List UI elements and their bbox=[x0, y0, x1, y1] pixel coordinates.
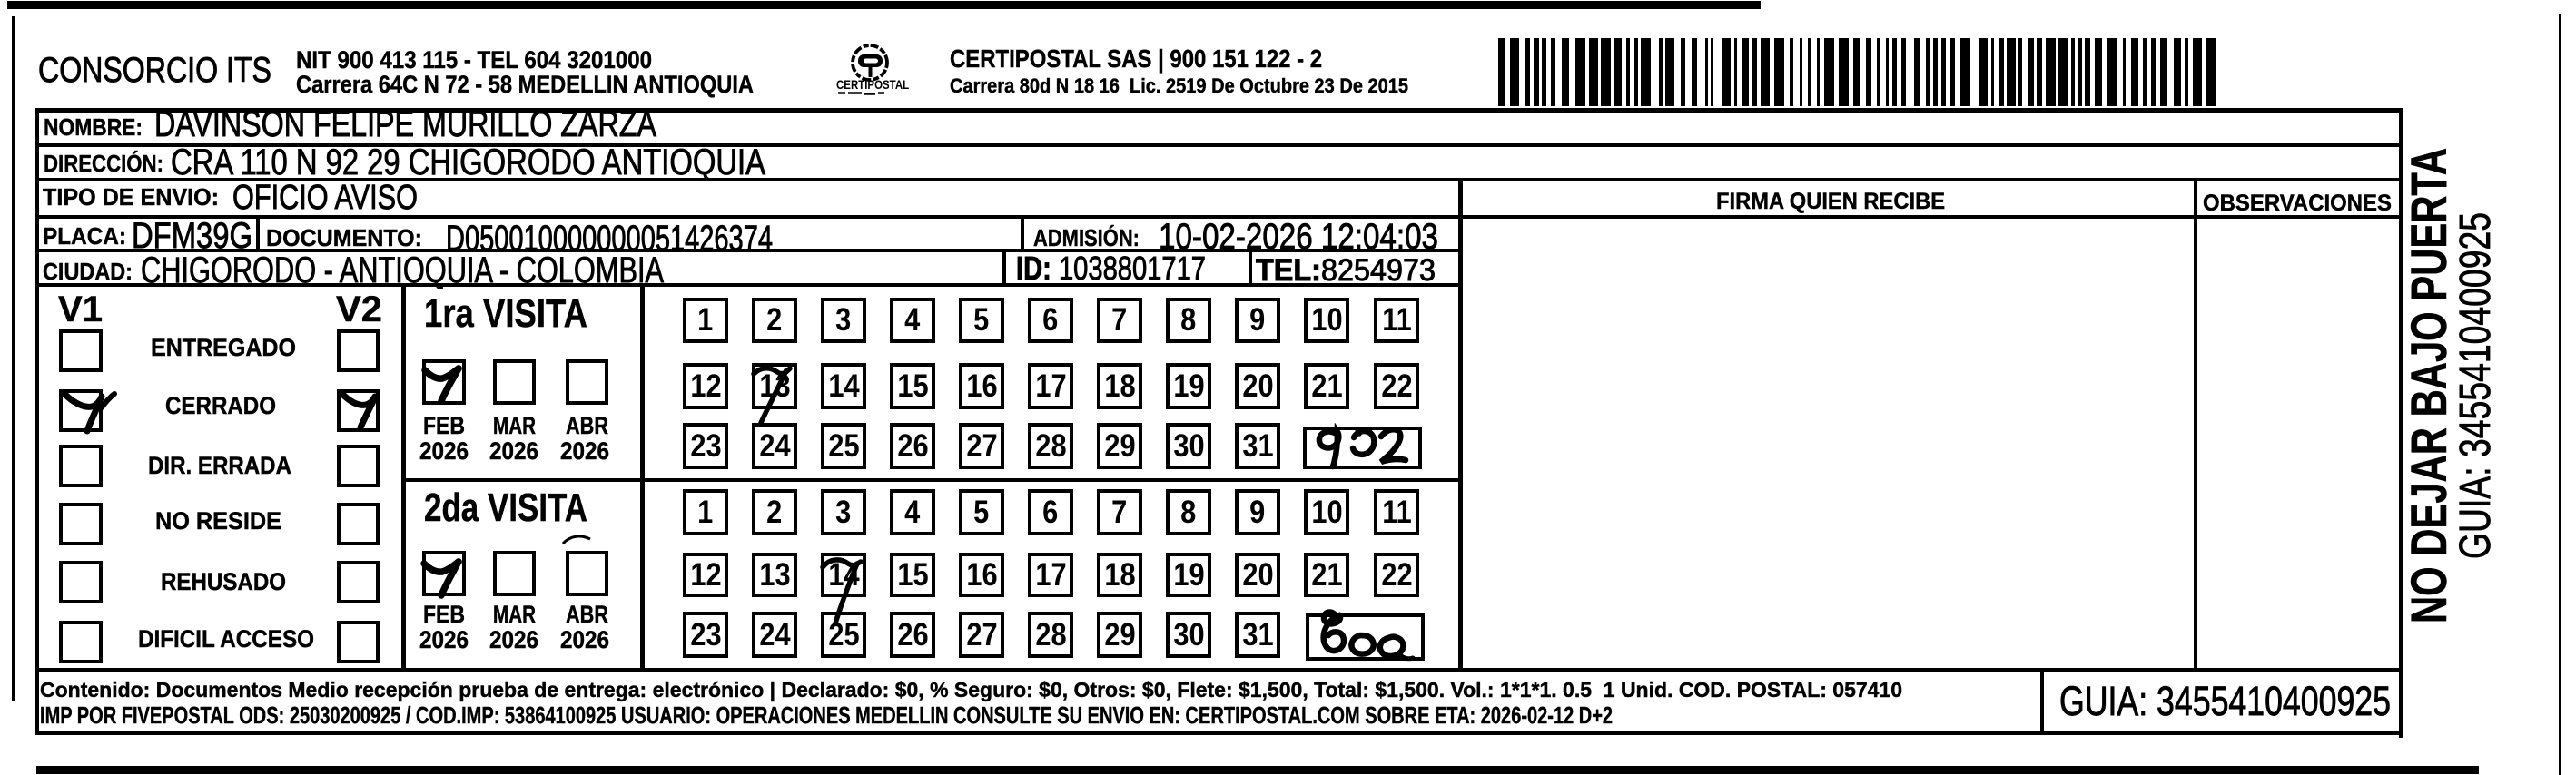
svg-text:CERTIPOSTAL: CERTIPOSTAL bbox=[836, 77, 909, 92]
